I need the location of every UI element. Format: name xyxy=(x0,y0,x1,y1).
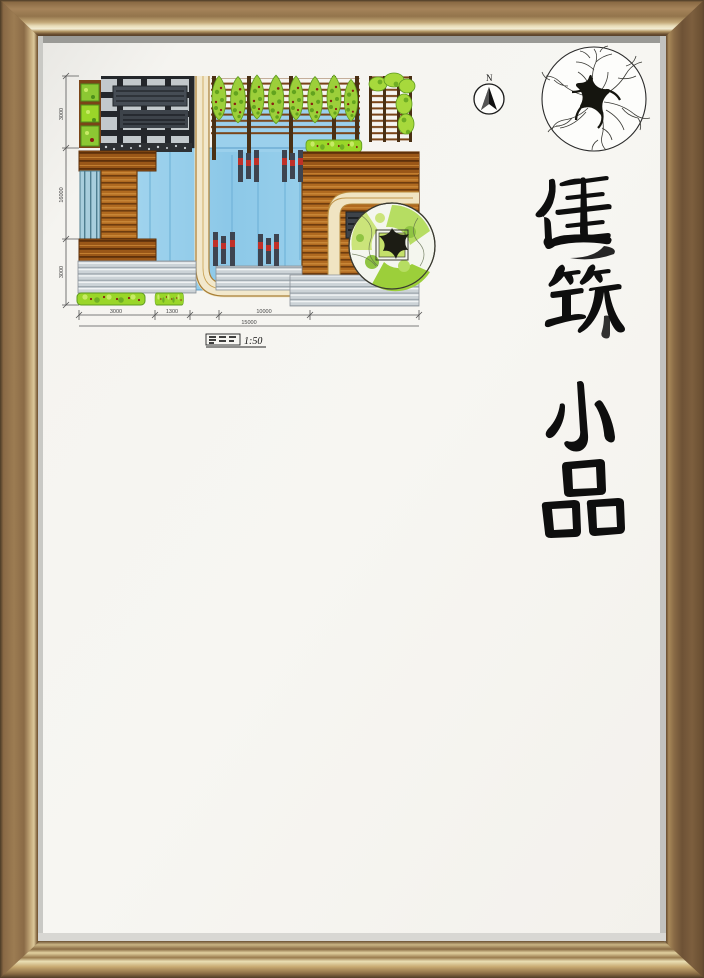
svg-text:16000: 16000 xyxy=(59,187,65,202)
svg-text:10000: 10000 xyxy=(256,309,271,315)
svg-text:N: N xyxy=(486,73,493,83)
svg-text:1300: 1300 xyxy=(166,309,178,315)
svg-text:3000: 3000 xyxy=(59,266,65,278)
svg-text:3000: 3000 xyxy=(110,309,122,315)
svg-text:1:50: 1:50 xyxy=(244,336,262,347)
svg-text:15000: 15000 xyxy=(241,320,256,326)
svg-text:3000: 3000 xyxy=(59,108,65,120)
